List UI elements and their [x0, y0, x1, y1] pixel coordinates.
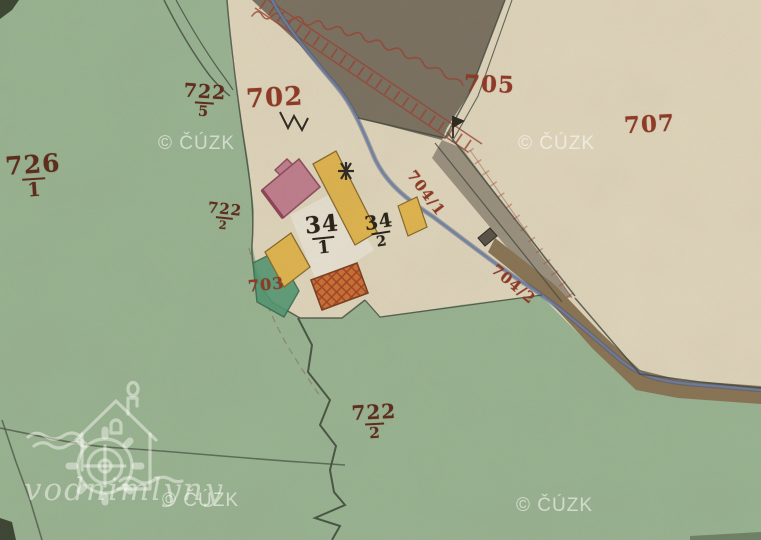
- mill-logo-watermark-icon: [10, 380, 230, 540]
- map-viewport[interactable]: 726 1 722 5 702 722 2 705 707 704/1 704/…: [0, 0, 761, 540]
